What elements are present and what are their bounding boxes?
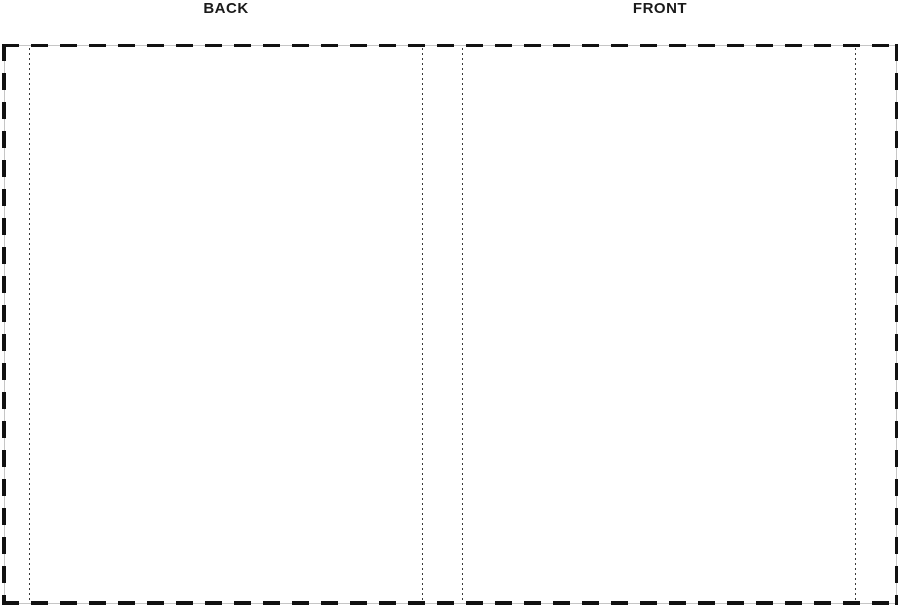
back-panel-label: BACK — [203, 0, 248, 18]
cut-line-top — [2, 44, 898, 47]
cut-line-bottom — [2, 601, 898, 605]
fold-line-back-spine — [422, 48, 423, 601]
fold-line-right-flap — [855, 48, 856, 601]
cut-line-right — [895, 44, 898, 605]
print-template-canvas: BACK FRONT — [0, 0, 900, 612]
front-panel-area — [463, 48, 855, 601]
cut-line-left — [2, 44, 6, 605]
front-panel-label: FRONT — [633, 0, 687, 18]
back-panel-area — [30, 48, 422, 601]
